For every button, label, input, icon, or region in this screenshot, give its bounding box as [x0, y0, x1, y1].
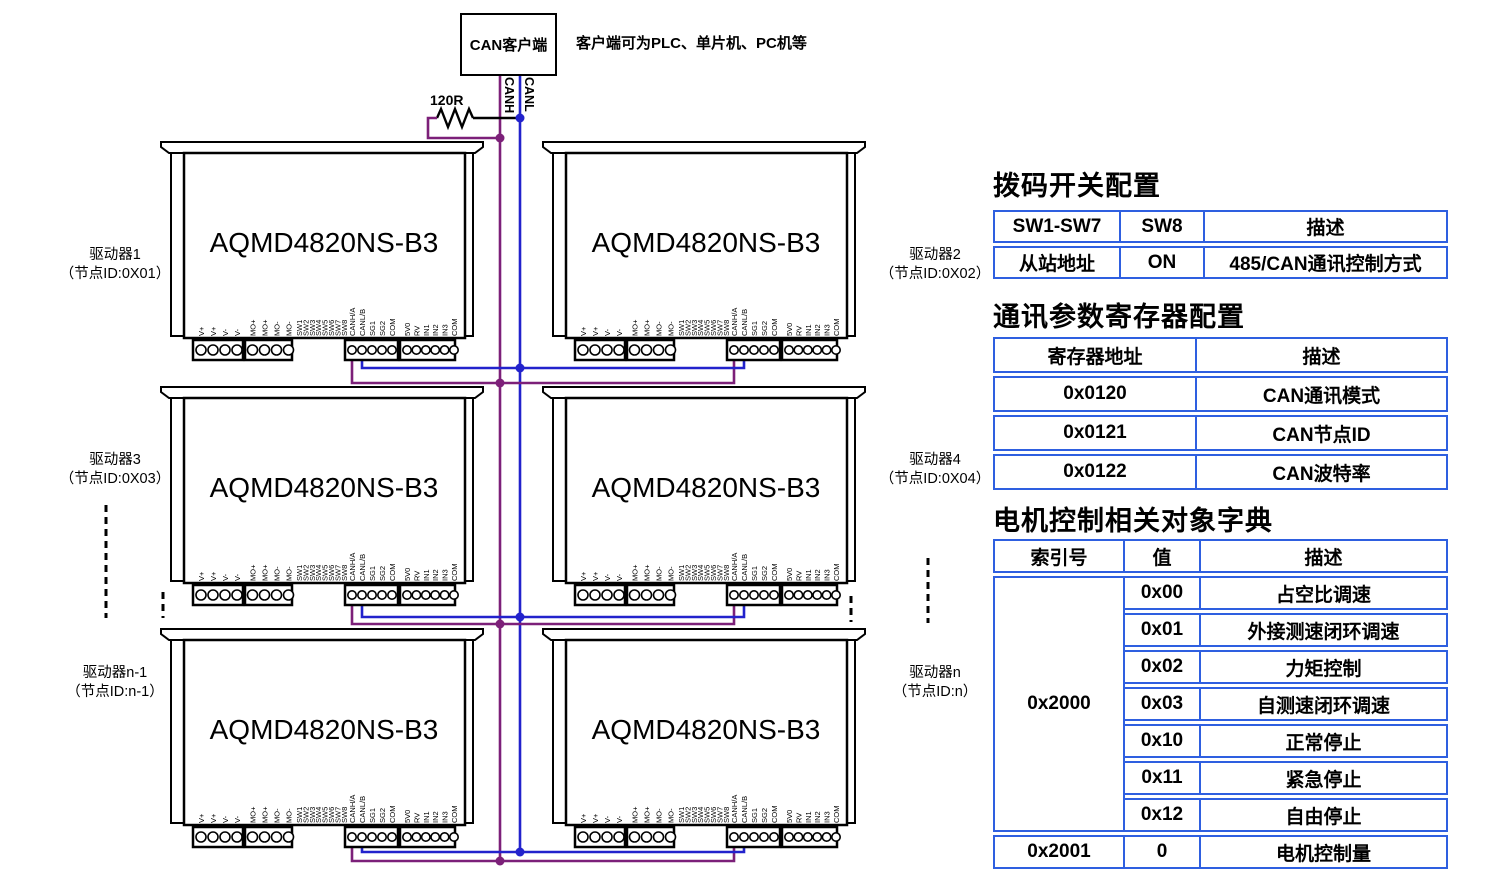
pin-label: COM	[832, 564, 841, 582]
terminal-hole	[614, 832, 624, 842]
table-cell: 力矩控制	[1201, 650, 1448, 684]
driver-module: AQMD4820NS-B3V+V+V-V-MO+MO+MO-MO-SW1SW2S…	[157, 385, 487, 607]
pin-label: SG2	[760, 566, 769, 581]
row3-canh-wire	[352, 847, 734, 861]
mount-rail-cap	[161, 629, 483, 640]
terminal-hole	[750, 346, 758, 354]
pin-label: V-	[221, 573, 230, 581]
table-cell: 寄存器地址	[993, 337, 1197, 373]
pin-label: CANH/A	[730, 553, 739, 581]
pin-label: CANH/A	[730, 308, 739, 336]
terminal-hole	[450, 833, 458, 841]
terminal-hole	[208, 832, 218, 842]
pin-label: V+	[579, 326, 588, 336]
canh-junction-dot	[496, 857, 505, 866]
table-cell: 描述	[1197, 337, 1448, 373]
section-title-object-dictionary: 电机控制相关对象字典	[993, 499, 1273, 538]
pin-label: MO-	[273, 808, 282, 823]
driver-node-label: 驱动器4（节点ID:0X04）	[855, 451, 1015, 489]
pin-label: V-	[233, 328, 242, 336]
pin-label: COM	[770, 806, 779, 824]
driver-node-label: 驱动器1（节点ID:0X01）	[35, 246, 195, 284]
terminal-hole	[358, 591, 366, 599]
table-cell: 描述	[1205, 210, 1448, 243]
pin-label: CANL/B	[358, 309, 367, 336]
terminal-hole	[730, 346, 738, 354]
pin-label: COM	[770, 564, 779, 582]
driver-node-label: 驱动器n（节点ID:n）	[855, 664, 1015, 702]
table-cell: 0x0120	[993, 376, 1197, 412]
pin-label: V-	[233, 815, 242, 823]
terminal-hole	[348, 591, 356, 599]
canl-junction-dot	[516, 613, 525, 622]
pin-label: SG1	[750, 321, 759, 336]
pin-label: V+	[209, 571, 218, 581]
pin-label: V-	[603, 328, 612, 336]
pin-label: MO+	[249, 806, 258, 823]
terminal-hole	[740, 591, 748, 599]
module-leg-left	[553, 153, 566, 336]
canh-junction-dot	[496, 379, 505, 388]
driver-name: 驱动器n-1	[35, 664, 195, 683]
pin-label: COM	[450, 806, 459, 824]
register-table: 寄存器地址描述0x0120CAN通讯模式0x0121CAN节点ID0x0122C…	[993, 334, 1448, 493]
terminal-hole	[794, 591, 802, 599]
pin-label: MO+	[261, 806, 270, 823]
terminal-hole	[654, 832, 664, 842]
pin-label: RV	[412, 813, 421, 823]
table-cell: 0x2001	[993, 835, 1125, 869]
module-leg-left	[553, 398, 566, 581]
pin-label: MO-	[285, 808, 294, 823]
table-cell: 外接测速闭环调速	[1201, 613, 1448, 647]
terminal-hole	[666, 345, 676, 355]
pin-label: MO-	[285, 321, 294, 336]
driver-model-label: AQMD4820NS-B3	[592, 227, 821, 258]
terminal-hole	[770, 833, 778, 841]
terminal-hole	[388, 833, 396, 841]
terminal-hole	[403, 346, 411, 354]
pin-label: IN1	[804, 569, 813, 581]
pin-label: V+	[579, 813, 588, 823]
pin-label: V-	[221, 815, 230, 823]
pin-label: IN3	[441, 324, 450, 336]
pin-label: V+	[579, 571, 588, 581]
terminal-hole	[378, 591, 386, 599]
terminal-hole	[232, 345, 242, 355]
table-cell: 0	[1125, 835, 1201, 869]
terminal-hole	[750, 591, 758, 599]
table-cell: CAN通讯模式	[1197, 376, 1448, 412]
terminal-hole	[578, 345, 588, 355]
pin-label: IN3	[823, 569, 832, 581]
terminal-hole	[422, 833, 430, 841]
pin-label: MO+	[249, 319, 258, 336]
canl-junction-dot	[516, 848, 525, 857]
pin-label: IN1	[422, 324, 431, 336]
pin-label: SG2	[378, 808, 387, 823]
pin-label: IN2	[813, 811, 822, 823]
pin-label: MO-	[273, 566, 282, 581]
pin-label: CANL/B	[358, 554, 367, 581]
table-cell: 电机控制量	[1201, 835, 1448, 869]
driver-module: AQMD4820NS-B3V+V+V-V-MO+MO+MO-MO-SW1SW2S…	[539, 627, 869, 849]
terminal-hole	[412, 346, 420, 354]
pin-label: IN1	[804, 324, 813, 336]
table-cell: 0x10	[1125, 724, 1201, 758]
terminal-hole	[822, 591, 830, 599]
terminal-hole	[832, 346, 840, 354]
terminal-hole	[740, 346, 748, 354]
terminal-hole	[760, 833, 768, 841]
terminal-hole	[440, 833, 448, 841]
driver-node-label: 驱动器3（节点ID:0X03）	[35, 451, 195, 489]
terminal-hole	[284, 345, 294, 355]
driver-node-label: 驱动器2（节点ID:0X02）	[855, 246, 1015, 284]
terminal-hole	[412, 833, 420, 841]
canl-bus-label: CANL	[522, 77, 536, 112]
terminal-hole	[284, 590, 294, 600]
table-cell: 自测速闭环调速	[1201, 687, 1448, 721]
driver-module-drawing: AQMD4820NS-B3V+V+V-V-MO+MO+MO-MO-SW1SW2S…	[539, 385, 869, 607]
terminal-hole	[450, 591, 458, 599]
pin-label: RV	[412, 571, 421, 581]
terminal-hole	[666, 832, 676, 842]
driver-name: 驱动器n	[855, 664, 1015, 683]
pin-label: MO+	[631, 564, 640, 581]
pin-label: SG1	[368, 808, 377, 823]
section-title-registers: 通讯参数寄存器配置	[993, 295, 1245, 334]
pin-label: V-	[233, 573, 242, 581]
pin-label: 5V0	[403, 568, 412, 581]
terminal-hole	[642, 345, 652, 355]
pin-label: CANL/B	[740, 309, 749, 336]
pin-label: MO-	[655, 808, 664, 823]
pin-label: SG1	[750, 808, 759, 823]
pin-label: 5V0	[785, 810, 794, 823]
terminal-hole	[403, 833, 411, 841]
terminal-hole	[208, 590, 218, 600]
table-cell: 0x11	[1125, 761, 1201, 795]
terminal-hole	[368, 833, 376, 841]
pin-label: COM	[832, 319, 841, 337]
table-cell: 0x00	[1125, 576, 1201, 610]
pin-label: V-	[615, 573, 624, 581]
terminal-hole	[422, 591, 430, 599]
pin-label: SG1	[368, 566, 377, 581]
terminal-hole	[403, 591, 411, 599]
module-leg-left	[553, 640, 566, 823]
table-cell: CAN波特率	[1197, 454, 1448, 490]
pin-label: MO-	[285, 566, 294, 581]
terminal-hole	[590, 345, 600, 355]
terminal-hole	[431, 591, 439, 599]
canl-junction-dot	[516, 114, 525, 123]
pin-label: COM	[450, 319, 459, 337]
pin-label: RV	[794, 571, 803, 581]
terminal-hole	[368, 591, 376, 599]
terminal-hole	[654, 345, 664, 355]
pin-label: MO+	[631, 806, 640, 823]
pin-label: IN1	[422, 569, 431, 581]
driver-module-drawing: AQMD4820NS-B3V+V+V-V-MO+MO+MO-MO-SW1SW2S…	[539, 627, 869, 849]
driver-node-id: （节点ID:0X03）	[35, 470, 195, 489]
object-dictionary-table: 索引号值描述0x20000x00占空比调速0x01外接测速闭环调速0x02力矩控…	[993, 536, 1448, 872]
mount-rail-cap	[543, 142, 865, 153]
row2-canh-wire	[352, 605, 734, 624]
pin-label: V-	[615, 815, 624, 823]
terminal-hole	[284, 832, 294, 842]
terminal-hole	[642, 590, 652, 600]
terminal-hole	[602, 590, 612, 600]
client-note-text: 客户端可为PLC、单片机、PC机等	[576, 32, 807, 53]
terminal-hole	[813, 833, 821, 841]
terminal-hole	[785, 591, 793, 599]
terminal-hole	[578, 590, 588, 600]
pin-label: MO-	[667, 808, 676, 823]
pin-label: V+	[209, 326, 218, 336]
module-leg-left	[171, 398, 184, 581]
table-cell: SW8	[1121, 210, 1205, 243]
table-cell: 自由停止	[1201, 798, 1448, 832]
terminal-hole	[248, 345, 258, 355]
canh-bus-label: CANH	[502, 77, 516, 113]
pin-label: IN3	[441, 811, 450, 823]
terminal-hole	[220, 832, 230, 842]
terminal-hole	[248, 832, 258, 842]
pin-label: IN2	[431, 569, 440, 581]
table-cell: 紧急停止	[1201, 761, 1448, 795]
driver-module-drawing: AQMD4820NS-B3V+V+V-V-MO+MO+MO-MO-SW1SW2S…	[539, 140, 869, 362]
pin-label: V-	[603, 573, 612, 581]
canh-junction-dot	[496, 620, 505, 629]
driver-module-drawing: AQMD4820NS-B3V+V+V-V-MO+MO+MO-MO-SW1SW2S…	[157, 385, 487, 607]
terminal-hole	[730, 833, 738, 841]
pin-label: IN1	[804, 811, 813, 823]
pin-label: 5V0	[785, 568, 794, 581]
table-cell: 0x12	[1125, 798, 1201, 832]
pin-label: IN3	[823, 324, 832, 336]
driver-module-drawing: AQMD4820NS-B3V+V+V-V-MO+MO+MO-MO-SW1SW2S…	[157, 627, 487, 849]
terminal-hole	[813, 591, 821, 599]
pin-label: CANH/A	[348, 308, 357, 336]
terminal-hole	[578, 832, 588, 842]
row1-canh-wire	[352, 360, 734, 383]
pin-label: MO+	[643, 806, 652, 823]
pin-label: COM	[388, 806, 397, 824]
canl-junction-dot	[516, 364, 525, 373]
table-cell: 0x2000	[993, 576, 1125, 832]
terminal-hole	[630, 832, 640, 842]
terminal-hole	[794, 346, 802, 354]
terminal-hole	[248, 590, 258, 600]
driver-name: 驱动器4	[855, 451, 1015, 470]
canh-junction-dot	[496, 134, 505, 143]
table-cell: 正常停止	[1201, 724, 1448, 758]
table-cell: 0x02	[1125, 650, 1201, 684]
pin-label: COM	[388, 564, 397, 582]
terminal-hole	[450, 346, 458, 354]
pin-label: COM	[388, 319, 397, 337]
terminal-hole	[440, 591, 448, 599]
terminal-hole	[770, 591, 778, 599]
pin-label: MO+	[631, 319, 640, 336]
terminator-resistor-label: 120R	[430, 92, 463, 108]
driver-module: AQMD4820NS-B3V+V+V-V-MO+MO+MO-MO-SW1SW2S…	[539, 140, 869, 362]
terminal-hole	[220, 590, 230, 600]
pin-label: MO-	[667, 321, 676, 336]
table-cell: 0x01	[1125, 613, 1201, 647]
terminal-hole	[614, 590, 624, 600]
pin-label: MO-	[273, 321, 282, 336]
pin-label: MO+	[643, 564, 652, 581]
table-cell: 0x0122	[993, 454, 1197, 490]
driver-module: AQMD4820NS-B3V+V+V-V-MO+MO+MO-MO-SW1SW2S…	[539, 385, 869, 607]
pin-label: V+	[197, 813, 206, 823]
pin-label: V+	[197, 571, 206, 581]
pin-label: V-	[221, 328, 230, 336]
terminal-hole	[220, 345, 230, 355]
pin-label: CANL/B	[358, 796, 367, 823]
pin-label: 5V0	[403, 323, 412, 336]
driver-node-id: （节点ID:0X01）	[35, 265, 195, 284]
resistor-zigzag	[437, 109, 473, 127]
terminal-hole	[602, 345, 612, 355]
terminal-hole	[260, 345, 270, 355]
driver-node-id: （节点ID:0X04）	[855, 470, 1015, 489]
pin-label: SG2	[760, 321, 769, 336]
driver-model-label: AQMD4820NS-B3	[210, 227, 439, 258]
pin-label: V+	[591, 813, 600, 823]
mount-rail-cap	[543, 387, 865, 398]
terminal-hole	[196, 832, 206, 842]
terminal-hole	[440, 346, 448, 354]
terminal-hole	[358, 346, 366, 354]
terminal-hole	[832, 591, 840, 599]
pin-label: IN2	[813, 569, 822, 581]
driver-model-label: AQMD4820NS-B3	[592, 472, 821, 503]
driver-node-id: （节点ID:n）	[855, 683, 1015, 702]
pin-label: V-	[603, 815, 612, 823]
pin-label: IN2	[813, 324, 822, 336]
section-title-dip-switch: 拨码开关配置	[993, 164, 1161, 203]
terminal-hole	[272, 832, 282, 842]
pin-label: RV	[794, 326, 803, 336]
pin-label: COM	[832, 806, 841, 824]
terminal-hole	[654, 590, 664, 600]
terminal-hole	[602, 832, 612, 842]
pin-label: SG2	[760, 808, 769, 823]
pin-label: MO+	[261, 564, 270, 581]
table-cell: 值	[1125, 539, 1201, 573]
pin-label: V+	[197, 326, 206, 336]
pin-label: RV	[412, 326, 421, 336]
mount-rail-cap	[161, 387, 483, 398]
terminal-hole	[590, 832, 600, 842]
terminal-hole	[630, 345, 640, 355]
pin-label: CANH/A	[348, 553, 357, 581]
terminal-hole	[196, 345, 206, 355]
can-client-label: CAN客户端	[470, 34, 548, 55]
table-cell: 0x03	[1125, 687, 1201, 721]
driver-module: AQMD4820NS-B3V+V+V-V-MO+MO+MO-MO-SW1SW2S…	[157, 140, 487, 362]
terminal-hole	[770, 346, 778, 354]
pin-label: COM	[770, 319, 779, 337]
module-leg-left	[171, 153, 184, 336]
terminal-hole	[431, 346, 439, 354]
terminal-hole	[804, 591, 812, 599]
terminal-hole	[208, 345, 218, 355]
pin-label: SG2	[378, 321, 387, 336]
terminal-hole	[422, 346, 430, 354]
pin-label: 5V0	[785, 323, 794, 336]
driver-node-id: （节点ID:n-1）	[35, 683, 195, 702]
terminal-hole	[630, 590, 640, 600]
terminal-hole	[348, 346, 356, 354]
table-cell: CAN节点ID	[1197, 415, 1448, 451]
pin-label: IN2	[431, 811, 440, 823]
pin-label: SG1	[750, 566, 759, 581]
mount-rail-cap	[543, 629, 865, 640]
terminal-hole	[760, 346, 768, 354]
terminal-hole	[822, 346, 830, 354]
terminal-hole	[822, 833, 830, 841]
pin-label: MO-	[655, 566, 664, 581]
pin-label: V+	[591, 571, 600, 581]
terminal-hole	[260, 832, 270, 842]
terminal-hole	[794, 833, 802, 841]
terminal-hole	[804, 833, 812, 841]
driver-name: 驱动器1	[35, 246, 195, 265]
pin-label: 5V0	[403, 810, 412, 823]
pin-label: MO+	[261, 319, 270, 336]
terminal-hole	[740, 833, 748, 841]
table-cell: 占空比调速	[1201, 576, 1448, 610]
can-bus-wiring-diagram: CAN客户端 客户端可为PLC、单片机、PC机等 120R CANH CANL …	[0, 0, 1500, 875]
terminal-hole	[260, 590, 270, 600]
pin-label: V+	[209, 813, 218, 823]
table-cell: 描述	[1201, 539, 1448, 573]
pin-label: IN1	[422, 811, 431, 823]
terminal-hole	[431, 833, 439, 841]
pin-label: IN2	[431, 324, 440, 336]
pin-label: CANL/B	[740, 554, 749, 581]
driver-node-label: 驱动器n-1（节点ID:n-1）	[35, 664, 195, 702]
pin-label: CANL/B	[740, 796, 749, 823]
driver-node-id: （节点ID:0X02）	[855, 265, 1015, 284]
terminal-hole	[785, 346, 793, 354]
pin-label: IN3	[441, 569, 450, 581]
terminal-hole	[232, 590, 242, 600]
terminal-hole	[804, 346, 812, 354]
terminal-hole	[666, 590, 676, 600]
pin-label: CANH/A	[348, 795, 357, 823]
dip-switch-table: SW1-SW7SW8描述从站地址ON485/CAN通讯控制方式	[993, 207, 1448, 282]
table-cell: SW1-SW7	[993, 210, 1121, 243]
can-client-box: CAN客户端	[460, 13, 557, 76]
terminal-hole	[590, 590, 600, 600]
terminal-hole	[730, 591, 738, 599]
terminal-hole	[272, 345, 282, 355]
driver-name: 驱动器2	[855, 246, 1015, 265]
terminal-hole	[832, 833, 840, 841]
pin-label: RV	[794, 813, 803, 823]
terminal-hole	[388, 591, 396, 599]
terminal-hole	[642, 832, 652, 842]
terminal-hole	[348, 833, 356, 841]
pin-label: IN3	[823, 811, 832, 823]
terminal-hole	[785, 833, 793, 841]
